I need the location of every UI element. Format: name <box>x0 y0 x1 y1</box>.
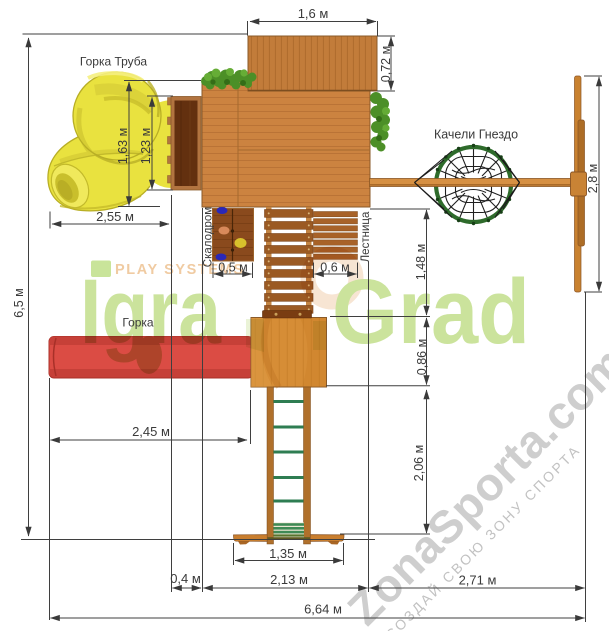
svg-text:0,72 м: 0,72 м <box>379 46 393 82</box>
svg-text:2,06 м: 2,06 м <box>412 445 426 481</box>
svg-text:2,13 м: 2,13 м <box>270 572 308 587</box>
svg-text:Горка: Горка <box>122 316 154 330</box>
svg-text:2,45 м: 2,45 м <box>132 424 170 439</box>
svg-text:6,5 м: 6,5 м <box>12 288 26 317</box>
svg-text:6,64 м: 6,64 м <box>304 602 342 617</box>
svg-text:2,55 м: 2,55 м <box>96 209 134 224</box>
svg-text:Качели Гнездо: Качели Гнездо <box>434 128 518 142</box>
svg-text:0,86 м: 0,86 м <box>415 339 429 375</box>
svg-text:2,8 м: 2,8 м <box>586 164 600 193</box>
svg-text:2,71 м: 2,71 м <box>459 573 497 588</box>
svg-text:1,35 м: 1,35 м <box>269 546 307 561</box>
svg-text:0,6 м: 0,6 м <box>320 261 349 275</box>
svg-text:Лестница: Лестница <box>360 211 372 262</box>
svg-text:1,6 м: 1,6 м <box>298 6 329 21</box>
svg-text:1,48 м: 1,48 м <box>414 244 428 280</box>
svg-text:Скалодром: Скалодром <box>203 207 215 267</box>
svg-text:1,63 м: 1,63 м <box>116 128 130 164</box>
svg-text:Горка Труба: Горка Труба <box>80 55 147 69</box>
svg-text:1,23 м: 1,23 м <box>139 128 153 164</box>
svg-text:0,4 м: 0,4 м <box>170 571 201 586</box>
svg-text:0,5 м: 0,5 м <box>218 261 247 275</box>
